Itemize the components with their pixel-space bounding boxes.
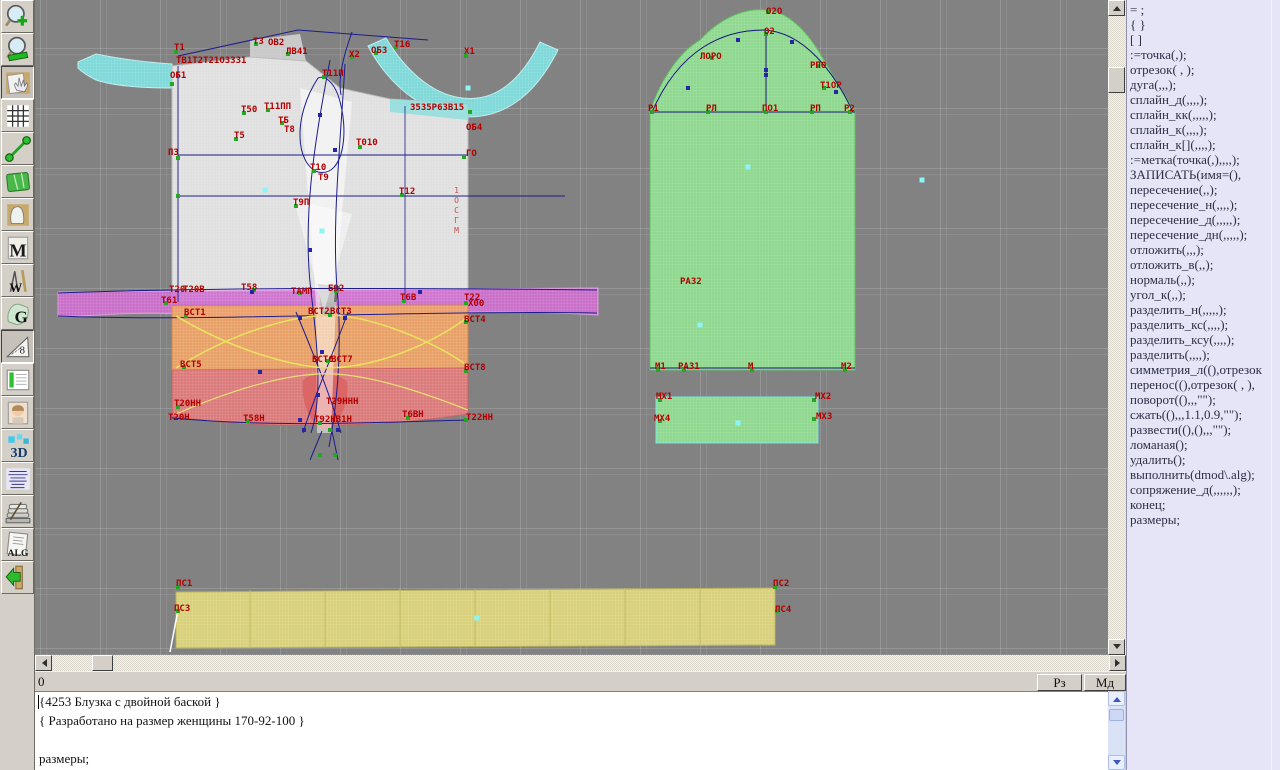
point-label: Т5 xyxy=(234,132,245,140)
grace-button[interactable]: G xyxy=(1,297,34,330)
command-item[interactable]: поворот((),,,""); xyxy=(1127,392,1280,407)
table-button[interactable] xyxy=(1,363,34,396)
svg-text:3D: 3D xyxy=(10,445,27,459)
pattern-shape xyxy=(340,32,352,95)
point-label: МХ2 xyxy=(815,393,831,401)
point-marker xyxy=(764,68,768,72)
point-marker xyxy=(308,248,312,252)
arrow-up-icon xyxy=(1113,2,1121,11)
panel-scroll-line xyxy=(1271,0,1272,770)
point-marker xyxy=(466,86,471,91)
point-label: Т1 xyxy=(174,44,185,52)
point-label: Т8 xyxy=(284,126,295,134)
scroll-up-button[interactable] xyxy=(1108,0,1125,16)
program-editor[interactable]: {4253 Блузка с двойной баской }{ Разрабо… xyxy=(35,691,1108,770)
rz-button[interactable]: Рз xyxy=(1037,674,1082,691)
command-item[interactable]: угол_к(,,); xyxy=(1127,287,1280,302)
scroll-left-button[interactable] xyxy=(35,655,52,671)
point-label: ВСТ4 xyxy=(464,316,486,324)
measure-button[interactable] xyxy=(1,132,34,165)
point-marker xyxy=(316,393,320,397)
table-icon xyxy=(4,366,32,394)
measure-icon xyxy=(4,135,32,163)
point-label: ТВ1Т2Т21ОЗЗЗ1 xyxy=(176,57,246,65)
point-label: ПС3 xyxy=(174,605,190,613)
command-item[interactable]: дуга(,,,); xyxy=(1127,77,1280,92)
list-icon xyxy=(4,465,32,493)
point-label: З5З5Р6ЗВ15 xyxy=(410,104,464,112)
point-label: Т92НВ1Н xyxy=(314,416,352,424)
point-label: О2 xyxy=(764,28,775,36)
point-marker xyxy=(328,428,332,432)
editor-scroll-thumb[interactable] xyxy=(1109,709,1124,721)
command-item[interactable]: симметрия_л((),отрезок xyxy=(1127,362,1280,377)
editor-scroll-up-button[interactable] xyxy=(1108,691,1125,706)
command-item[interactable]: разделить_кс(,,,,); xyxy=(1127,317,1280,332)
point-marker xyxy=(736,421,741,426)
point-label: РА32 xyxy=(680,278,702,286)
scroll-right-button[interactable] xyxy=(1109,655,1126,671)
command-item[interactable]: [ ] xyxy=(1127,32,1280,47)
command-item[interactable]: пересечение_д(,,,,,); xyxy=(1127,212,1280,227)
point-label: Т16 xyxy=(394,41,410,49)
point-marker xyxy=(176,194,180,198)
status-value: 0 xyxy=(38,674,45,690)
point-label: Т11ПП xyxy=(264,103,291,111)
arrow-right-icon xyxy=(1115,659,1124,667)
command-item[interactable]: нормаль(,,); xyxy=(1127,272,1280,287)
command-item[interactable]: сопряжение_д(,,,,,,); xyxy=(1127,482,1280,497)
point-label: МХ1 xyxy=(656,393,672,401)
grid-icon xyxy=(4,102,32,130)
pattern-shape xyxy=(78,54,172,88)
pan-icon xyxy=(4,69,32,97)
point-label: Т22НН xyxy=(466,414,493,422)
point-marker xyxy=(698,323,703,328)
point-marker xyxy=(298,418,302,422)
vertical-label: 1ОСГМ xyxy=(452,186,461,236)
point-label: ЛОРО xyxy=(700,53,722,61)
point-label: Р1 xyxy=(648,105,659,113)
point-label: Т1ОР xyxy=(820,82,842,90)
point-label: ЛВ41 xyxy=(286,48,308,56)
command-item[interactable]: пересечение(,,); xyxy=(1127,182,1280,197)
vertical-scroll-thumb[interactable] xyxy=(1108,67,1125,93)
point-label: МХ4 xyxy=(654,415,670,423)
point-marker xyxy=(764,73,768,77)
books-icon xyxy=(4,498,32,526)
point-marker xyxy=(475,616,480,621)
point-label: Т12 xyxy=(399,188,415,196)
command-item[interactable]: :=метка(точка(,),,,,); xyxy=(1127,152,1280,167)
command-item[interactable]: развести((),(),,,""); xyxy=(1127,422,1280,437)
point-label: ТБ xyxy=(278,117,289,125)
command-item[interactable]: { } xyxy=(1127,17,1280,32)
m-module-button[interactable]: M xyxy=(1,231,34,264)
point-marker xyxy=(920,178,925,183)
point-label: ПЗ xyxy=(168,149,179,157)
point-label: О2О xyxy=(766,8,782,16)
point-label: ВСТ1 xyxy=(184,309,206,317)
point-label: ВСТ3 xyxy=(330,308,352,316)
zoom-out-button[interactable] xyxy=(1,33,34,66)
portrait-button[interactable] xyxy=(1,396,34,429)
editor-scroll-down-button[interactable] xyxy=(1108,755,1125,770)
command-item[interactable]: отрезок( , ); xyxy=(1127,62,1280,77)
point-label: ВСТ5 xyxy=(180,361,202,369)
command-item[interactable]: размеры; xyxy=(1127,512,1280,527)
point-label: ПС2 xyxy=(773,580,789,588)
point-label: МХ3 xyxy=(816,413,832,421)
command-item[interactable]: пересечение_дн(,,,,,); xyxy=(1127,227,1280,242)
grid-button[interactable] xyxy=(1,99,34,132)
command-item[interactable]: удалить(); xyxy=(1127,452,1280,467)
point-marker xyxy=(318,453,322,457)
grace-icon: G xyxy=(4,300,32,328)
point-label: Т58Н xyxy=(243,415,265,423)
command-item[interactable]: отложить(,,,); xyxy=(1127,242,1280,257)
point-label: ВСТ7 xyxy=(331,356,353,364)
canvas-vertical-scrollbar[interactable] xyxy=(1108,0,1126,655)
md-button[interactable]: Мд xyxy=(1084,674,1126,691)
editor-line: { Разработано на размер женщины 170-92-1… xyxy=(35,711,1108,730)
point-label: Т010 xyxy=(356,139,378,147)
point-label: Т20Н xyxy=(168,414,190,422)
command-item[interactable]: сплайн_к[](,,,,); xyxy=(1127,137,1280,152)
point-label: Х00 xyxy=(468,300,484,308)
draw-tools-icon: W xyxy=(4,267,32,295)
point-marker xyxy=(333,148,337,152)
point-marker xyxy=(746,165,751,170)
command-item[interactable]: сплайн_кк(,,,,,); xyxy=(1127,107,1280,122)
svg-text:G: G xyxy=(14,307,27,326)
point-label: Т11П xyxy=(322,70,344,78)
editor-line xyxy=(35,730,1108,749)
point-label: ОБ4 xyxy=(466,124,482,132)
command-item[interactable]: отложить_в(,,); xyxy=(1127,257,1280,272)
point-label: ОБ1 xyxy=(170,72,186,80)
point-label: Т9П xyxy=(293,199,309,207)
exit-icon xyxy=(4,564,32,592)
svg-text:M: M xyxy=(9,240,26,260)
point-marker xyxy=(418,290,422,294)
command-item[interactable]: пересечение_н(,,,,); xyxy=(1127,197,1280,212)
point-label: М xyxy=(748,363,753,371)
command-item[interactable]: разделить_н(,,,,,); xyxy=(1127,302,1280,317)
point-marker xyxy=(263,188,268,193)
scroll-down-button[interactable] xyxy=(1108,639,1125,655)
arrow-left-icon xyxy=(38,659,47,667)
command-item[interactable]: сплайн_к(,,,,); xyxy=(1127,122,1280,137)
svg-text:W: W xyxy=(9,279,22,294)
canvas-drawing xyxy=(35,0,1108,655)
point-marker xyxy=(298,316,302,320)
editor-text: {4253 Блузка с двойной баской }{ Разрабо… xyxy=(35,692,1108,768)
m-module-icon: M xyxy=(4,234,32,262)
point-label: Т29ННН xyxy=(326,398,359,406)
command-item[interactable]: ЗАПИСАТЬ(имя=(), xyxy=(1127,167,1280,182)
point-marker xyxy=(336,428,340,432)
point-label: Б92 xyxy=(328,285,344,293)
point-label: Р2 xyxy=(844,105,855,113)
point-marker xyxy=(790,40,794,44)
text-cursor xyxy=(38,695,39,709)
point-label: Т10 xyxy=(310,164,326,172)
list-button[interactable] xyxy=(1,462,34,495)
books-button[interactable] xyxy=(1,495,34,528)
status-row: 0 Рз Мд xyxy=(35,671,1126,691)
point-marker xyxy=(320,350,324,354)
portrait-icon xyxy=(4,399,32,427)
command-item[interactable]: :=точка(,); xyxy=(1127,47,1280,62)
view-3d-icon: 3D xyxy=(4,432,32,460)
point-marker xyxy=(320,229,325,234)
point-label: ТАМП xyxy=(291,288,313,296)
point-label: М2 xyxy=(841,363,852,371)
command-item[interactable]: разделить(,,,,); xyxy=(1127,347,1280,362)
point-label: РП xyxy=(810,105,821,113)
point-label: РЛ xyxy=(706,105,717,113)
zoom-in-button[interactable] xyxy=(1,0,34,33)
point-label: Т58 xyxy=(241,284,257,292)
command-item[interactable]: перенос((),отрезок( , ), xyxy=(1127,377,1280,392)
point-label: Т3 xyxy=(253,38,264,46)
point-label: М1 xyxy=(655,363,666,371)
editor-line: {4253 Блузка с двойной баской } xyxy=(35,692,1108,711)
horizontal-scroll-thumb[interactable] xyxy=(92,655,113,671)
point-label: Т50 xyxy=(241,106,257,114)
command-list: = ;{ }[ ]:=точка(,);отрезок( , );дуга(,,… xyxy=(1127,0,1280,527)
pattern-canvas[interactable]: Т1ТВ1Т2Т21ОЗЗЗ1ОБ1Т3ОВ2ЛВ41Х2ОБ3Т16Х1Т11… xyxy=(35,0,1108,655)
view-3d-button[interactable]: 3D xyxy=(1,429,34,462)
pattern-shape xyxy=(656,397,818,443)
command-item[interactable]: выполнить(dmod\.alg); xyxy=(1127,467,1280,482)
point-label: Т61 xyxy=(161,297,177,305)
point-marker xyxy=(318,113,322,117)
arrow-up-icon xyxy=(1113,693,1121,702)
alg-icon: ALG xyxy=(4,531,32,559)
pattern-button[interactable] xyxy=(1,198,34,231)
point-marker xyxy=(736,38,740,42)
point-marker xyxy=(258,370,262,374)
zoom-out-icon xyxy=(4,36,32,64)
point-label: ВСТ2 xyxy=(308,308,330,316)
command-item[interactable]: = ; xyxy=(1127,2,1280,17)
draw-tools-button[interactable]: W xyxy=(1,264,34,297)
point-label: РА31 xyxy=(678,363,700,371)
map-button[interactable] xyxy=(1,165,34,198)
point-marker xyxy=(468,110,472,114)
point-label: Т9 xyxy=(318,174,329,182)
point-label: Т6ВН xyxy=(402,411,424,419)
point-marker xyxy=(302,428,306,432)
command-panel: = ;{ }[ ]:=точка(,);отрезок( , );дуга(,,… xyxy=(1126,0,1280,770)
point-label: Т6В xyxy=(400,294,416,302)
alg-button[interactable]: ALG xyxy=(1,528,34,561)
point-label: Т20В xyxy=(183,286,205,294)
point-label: РПО xyxy=(810,62,826,70)
svg-text:ALG: ALG xyxy=(7,547,28,558)
editor-line: размеры; xyxy=(35,749,1108,768)
command-item[interactable]: сплайн_д(,,,,); xyxy=(1127,92,1280,107)
point-label: ПС1 xyxy=(176,580,192,588)
canvas-horizontal-scrollbar[interactable] xyxy=(35,655,1126,671)
point-marker xyxy=(170,82,174,86)
command-item[interactable]: сжать((),,,1.1,0.9,""); xyxy=(1127,407,1280,422)
editor-scrollbar[interactable] xyxy=(1108,691,1125,770)
point-label: ПО1 xyxy=(762,105,778,113)
point-label: Х2 xyxy=(349,51,360,59)
point-label: ВСТ8 xyxy=(464,364,486,372)
app: { "status": { "left": "0", "buttons": ["… xyxy=(0,0,1280,770)
ruler-button[interactable]: 8 xyxy=(1,330,34,363)
point-label: ГО xyxy=(466,150,477,158)
point-label: Т20НН xyxy=(174,400,201,408)
zoom-in-icon xyxy=(4,3,32,31)
arrow-down-icon xyxy=(1113,644,1121,653)
command-item[interactable]: ломаная(); xyxy=(1127,437,1280,452)
point-marker xyxy=(333,453,337,457)
exit-button[interactable] xyxy=(1,561,34,594)
toolbar: MWG83DALG xyxy=(0,0,35,770)
map-icon xyxy=(4,168,32,196)
point-label: ОБ3 xyxy=(371,47,387,55)
ruler-icon: 8 xyxy=(4,333,32,361)
pan-button[interactable] xyxy=(1,66,34,99)
svg-text:8: 8 xyxy=(19,344,24,356)
point-label: ОВ2 xyxy=(268,39,284,47)
command-item[interactable]: разделить_ксу(,,,,); xyxy=(1127,332,1280,347)
command-item[interactable]: конец; xyxy=(1127,497,1280,512)
point-marker xyxy=(686,86,690,90)
pattern-icon xyxy=(4,201,32,229)
point-label: ПС4 xyxy=(775,606,791,614)
arrow-down-icon xyxy=(1113,760,1121,769)
point-label: Х1 xyxy=(464,48,475,56)
